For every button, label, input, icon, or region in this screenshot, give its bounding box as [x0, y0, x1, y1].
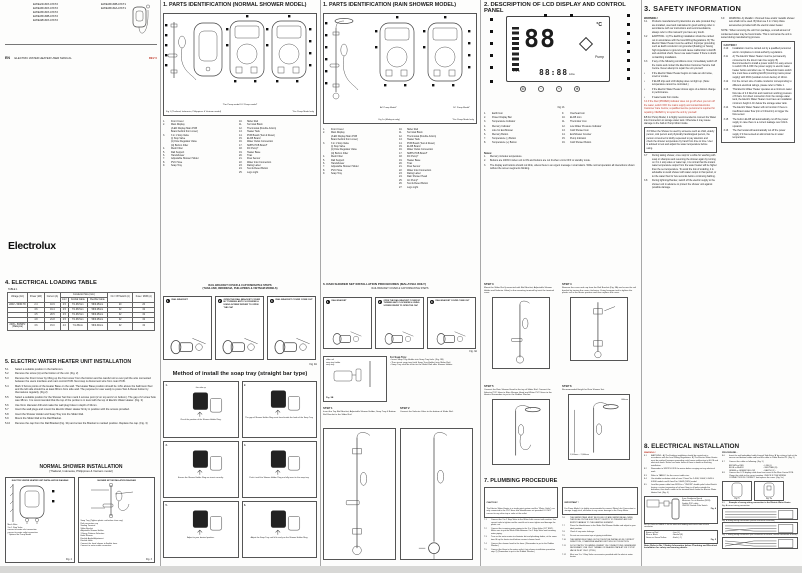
safety-item: 3.3If any of the following conditions oc… [644, 60, 717, 70]
procedure-item: 7.2Connect the incoming water piping to … [484, 528, 558, 536]
fig1a-drawing [324, 14, 474, 106]
manual-page: EWE241MX-DST2EWE361MX-DST2EWE451MX-DST2E… [0, 0, 802, 573]
manual-title: ELECTRIC WATER HEATER USER MANUAL [14, 56, 71, 60]
legend-entry: 8.Temperature (+) Button [484, 141, 558, 144]
part-entry: 9.Soap Tray [163, 164, 235, 167]
step5-text: Connect the Rain Shower Head to the top … [484, 389, 558, 397]
step3-figure [492, 297, 550, 369]
ac-pump-label: AC Pump Model* [380, 107, 397, 110]
heater-unit-icon [129, 4, 153, 42]
step4-label: STEP 4 [562, 282, 636, 286]
section8-title: 8. ELECTRICAL INSTALLATION [644, 443, 798, 450]
rail-step-panel: 3 RAIL BRACKET COVER COME OUT [427, 297, 476, 349]
safety-item: 3.7During taking shower, once stop for a… [644, 154, 717, 178]
procedure-item: 5.4Mark 3 Screw points of the Heater Bas… [5, 385, 157, 395]
part-entry: 27.Logo Light [399, 186, 436, 189]
dc-pump-label: DC Pump Model* [453, 107, 470, 110]
procedure-item: 7.5Connect the Hose to the water outlet.… [484, 549, 558, 554]
cold-shower-button[interactable]: ❄ [574, 86, 580, 92]
fig1a-frame: AC Pump Model* DC Pump Model* Fig 1a (Ma… [323, 13, 477, 124]
degc-label: °C [596, 22, 602, 28]
fig1-caption: Fig 1 (Thailand, Indonesia, Philippines … [166, 111, 221, 114]
caution-item: 3.11A) The Electric Water Heater must be… [724, 55, 793, 79]
step2-text: Connect the Selector Valve to the bottom… [400, 411, 473, 414]
pump-digit-box [579, 37, 593, 51]
normal-install-heading: NORMAL SHOWER INSTALLATION [Thailand, In… [5, 464, 157, 474]
plumbing-caution-box: CAUTION ! The Electric Water Heater is a… [484, 487, 558, 518]
procedure-item: 5.8Insert the Shower Holder and Soap Tra… [5, 413, 157, 416]
legend-entry: 4.Memory Indicator [484, 125, 558, 128]
fig3-labels: Soap Tray (Tighten plastic nut before cl… [81, 520, 153, 548]
page-edge [0, 566, 802, 573]
procedure-item: 7.1Connect the 3 in 1 Stop Valve to the … [484, 519, 558, 527]
fig1b-caption: Fig 1b [484, 106, 638, 109]
safety-item: 3.2EARTHING : A) The Earthing installati… [644, 35, 717, 59]
lcd-title: 2. DESCRIPTION OF LCD DISPLAY AND CONTRO… [484, 2, 638, 14]
fig5-figures: Fig. 5 Fig. 5a [722, 481, 798, 501]
step4-text: Remove the cover and cap from the Rail B… [562, 287, 636, 295]
steps-1-2-figures [323, 428, 477, 560]
temperature-digits: 88 [524, 19, 556, 59]
column-divider [641, 0, 642, 566]
legend-entry: 16.Cold Shower Button [562, 141, 601, 144]
part-entry: 25.Logo Light [239, 171, 276, 174]
section3-title: 3. SAFETY INFORMATION [644, 4, 798, 13]
procedure-item: 5.5Select a suitable position for the Sh… [5, 396, 157, 403]
figure-label: * Optional for Pump Model [8, 534, 73, 537]
plumbing-body: CAUTION ! The Electric Water Heater is a… [484, 487, 638, 560]
parts-normal-title: 1. PARTS IDENTIFICATION (NORMAL SHOWER M… [163, 2, 317, 8]
soap-tray-notes: For Soap Tray: • Insert Soap Tray Holder… [390, 356, 477, 402]
electrical-bold-note: Note: Refer to No. 3 Safety Information … [644, 545, 718, 550]
soap-step-panel: 4. Push it until the Shower Holder Ring … [242, 441, 318, 498]
step2-label: STEP 2 [400, 406, 473, 410]
legend-entry: 12.Low Water Pressure Indicator [562, 125, 601, 128]
panel-parts-normal: 1. PARTS IDENTIFICATION (NORMAL SHOWER M… [163, 0, 317, 566]
fig3-caption: Fig. 3 [146, 558, 152, 561]
procedure-item: 5.1Select a suitable position in the bat… [5, 368, 157, 371]
legend-entry: 6.Memory Button [484, 133, 558, 136]
column-divider [480, 0, 481, 566]
plumbing-important-box: IMPORTANT ! For Pump Model, it is highly… [562, 487, 638, 515]
fig3b-labels: slider railsoap tray holdersoap tray [326, 359, 340, 367]
legend-entry: 9.Overheat Icon [562, 112, 601, 115]
step2-figure [400, 428, 473, 560]
note-entry: 1.Memory includes temperature. [484, 155, 638, 158]
legend-entry: 10.ELCB Icon [562, 116, 601, 119]
procedure-item: 5.6Use 6mm diameter drill and make the w… [5, 404, 157, 407]
procedure-item: 5.7Insert the wall plugs and mount the E… [5, 408, 157, 411]
soap-step-panel: 6. Adjust the Soap Tray until it fit nic… [242, 501, 318, 558]
fig4-box: Fuse Distributor BoardMiniature Circuit … [644, 496, 718, 524]
figB-drawing [722, 522, 798, 534]
safety-item-3-9: 3.9WARNING: A) Metallic / chromed hose a… [721, 17, 795, 27]
pump-note: *For Pump model DC Pump model* [164, 104, 316, 107]
panel-safety-electrical: 3. SAFETY INFORMATION WARNING ! 3.1Produ… [644, 0, 798, 566]
procedure-item: 7.4Connect the shower head to the hose. … [484, 543, 558, 548]
fig3b-box: slider railsoap tray holdersoap tray Fig… [323, 356, 387, 402]
safety-item: •If ELCB trips and LCD display does not … [644, 80, 717, 87]
legend-entry: 7.Temperature (-) Button [484, 137, 558, 140]
fig2-unit-install-diagram: ELECTRIC WATER HEATER UNIT INSTALLATION … [5, 477, 75, 563]
fig4-note: NOTE: Refer to TABLE 1 for the electrica… [644, 524, 718, 529]
fig1a-note: *For Pump Model only [452, 119, 474, 122]
electrical-item: 8.5Lead the power cable from MCB to a "O… [644, 484, 718, 494]
normal-install-figures: ELECTRIC WATER HEATER UNIT INSTALLATION … [5, 477, 157, 563]
power-display-bar [512, 27, 519, 71]
legend-entry: 15.Pump Indicator [562, 137, 601, 140]
note-entry: 3.The display and buttons should not bli… [484, 164, 638, 170]
soap-step-panel: 3. Ensure the Shower Holder Ring are ins… [163, 441, 239, 498]
section7-title: 7. PLUMBING PROCEDURE [484, 478, 638, 484]
dim-2000mm: 1,900mm ~ 2,000mm [570, 454, 589, 457]
procedure-item: 7.3Turn on the water mains to eliminate … [484, 536, 558, 541]
electrical-item: 8.4Use double insulation cable of over 2… [644, 478, 718, 483]
fig2-caption: Fig. 2 [66, 558, 72, 561]
fig1-drawing [164, 14, 314, 98]
procedure-item: 5.3Remove the Front Cover by lifting up … [5, 377, 157, 384]
parts-rain-list: 1.Front Cover2.Main Display(/LED Display… [323, 128, 477, 189]
ecoshower-counter: 88:88 [539, 68, 568, 77]
step6-figure: 600mm 1,900mm ~ 2,000mm [568, 394, 630, 460]
safety-item: •If the Electric Water Heater begins to … [644, 72, 717, 79]
safety-item: 3.8During lightning/thunder, switch off … [644, 179, 717, 189]
legend-entry: 13.Cold Shower Icon [562, 129, 601, 132]
fig3-drawing [81, 482, 151, 520]
loading-table-wrap: Voltage (AC) Power (kW) Current (A) Cond… [7, 292, 155, 331]
soap-step-panel: 5. Adjust to your desired position. [163, 501, 239, 558]
legend-entry: 3.Temperature Indicator [484, 120, 558, 123]
procedure-item: 7.7Press the Handshower to the Slider Ra… [562, 525, 638, 530]
caution-item: 3.12For the correct size of cable conduc… [724, 80, 793, 87]
fig4-labels: Fuse Distributor BoardMiniature Circuit … [682, 498, 716, 508]
fig3b-caption: Fig. 3B [326, 397, 333, 400]
wire-color-box: Brown or Red: Live (L)Blue or Black: Neu… [644, 530, 718, 544]
procedure-item: 7.10THE WATER INLET AND OUTLET MUST BE I… [562, 539, 638, 544]
brand-logo: Electrolux [8, 240, 157, 252]
lcd-figure: 88 °C Pump 1 2 3 88:88 Litre M − + ❄ [484, 14, 638, 106]
section5-items: 5.1Select a suitable position in the bat… [5, 368, 157, 426]
parts-rain-title: 1. PARTS IDENTIFICATION (RAIN SHOWER MOD… [323, 2, 477, 8]
temp-minus-button[interactable]: − [538, 86, 544, 92]
electrical-item: 8.6Insert the wall embedded cable throug… [722, 455, 798, 460]
dim-600mm: 600mm [621, 399, 628, 402]
electrical-item: 8.2Remember to SWITCH OFF the mains befo… [644, 468, 718, 473]
fig1-frame: *For Pump model DC Pump model* Fig 1 (Th… [163, 13, 317, 116]
procedure-item: 7.6THE WATER TANK MUST BE FILLED UP AND … [562, 517, 638, 525]
figC-drawing [722, 537, 798, 549]
step1-figure [323, 428, 396, 560]
fig5-box: Fig. 5 [722, 481, 752, 501]
soap-step-panel: 1. this side up Check the position of th… [163, 381, 239, 438]
caution-item: 3.15The built-in ELCB will automatically… [724, 118, 793, 128]
fig3-shower-set-diagram: SHOWER SET INSTALLATION DIAGRAM Soap Tra… [78, 477, 155, 563]
step6-text: Recommended Height for Rain Shower Set. [562, 389, 636, 392]
fig2-header: ELECTRIC WATER HEATER UNIT INSTALLATION … [8, 480, 73, 483]
column-divider [320, 0, 321, 566]
caution-item: 3.14The Electric Water Heater will not f… [724, 106, 793, 116]
model-number: EWE481MX-DST2 [33, 19, 97, 23]
electrical-item: 8.7Connect the cable as following: (Fig.… [722, 461, 798, 464]
electrical-body: WARNING ! 8.1EARTHING : A) The Earthing … [644, 452, 798, 550]
fig4-drawing [646, 498, 680, 522]
loading-table: Voltage (AC) Power (kW) Current (A) Cond… [7, 292, 155, 331]
electrical-item-8-9: 8.9Example of wrong wiring connection to… [722, 502, 798, 505]
safety-box-3-6: 3.6 When the Shower is used by someone s… [644, 127, 717, 152]
procedure-item: 7.11DO NOT APPLY PLUMBING CEMENT ON CONN… [562, 545, 638, 553]
step3-text: Mount the Slider Rail (connected with Ra… [484, 287, 558, 295]
safety-item-3-5: 3.5 For Pump Model, it is highly recomme… [644, 116, 717, 126]
fig5a-box: Fig. 5a [754, 481, 784, 501]
table-label: TABLE 1 [8, 288, 157, 291]
model-number: EWE361MA-DST1 [101, 7, 126, 11]
legend-entry: 1.Earth Icon [484, 112, 558, 115]
electrical-item: 8.1EARTHING : A) The Earthing installati… [644, 455, 718, 468]
figure-label: soap tray [326, 364, 340, 367]
language-tag: EN [5, 56, 10, 60]
figA-drawing [722, 508, 798, 520]
steps-1-2: STEP 1 Insert the Top Rail Bracket, Adju… [323, 406, 477, 416]
steps-5-6: STEP 5 Connect the Rain Shower Head to t… [484, 384, 638, 465]
fig4-caption: Fig. 4 [682, 508, 716, 511]
rail-step-panel: 3 RAIL BRACKET COVER COME OUT [267, 296, 316, 360]
legend-entry: 14.EcoShower Counter [562, 133, 601, 136]
legend-entry: 11.Thermistor Icon [562, 120, 601, 123]
temp-plus-button[interactable]: + [556, 86, 562, 92]
fig2-labels: Mesh Filter3 in 1 Stop Valveconnect to w… [8, 524, 73, 537]
caution-box: CAUTION ! 3.10Installation must be carri… [721, 41, 795, 143]
fig3a-caption: Fig 3A [163, 363, 317, 366]
safety-item-3-4: 3.4 If the Red (POWER) indicator does no… [644, 100, 717, 114]
soap-method-title: Method of install the soap tray (straigh… [163, 371, 317, 377]
steps-3-4: STEP 3 Mount the Slider Rail (connected … [484, 282, 638, 369]
step1-label: STEP 1 [323, 406, 396, 410]
safety-item: •If water leaks from inside. [644, 96, 717, 99]
fig3a-caption-rain: Fig. 3A [323, 350, 477, 353]
procedure-item: 5.10Remove the cap from the Rail Bracket… [5, 422, 157, 425]
safety-item: 3.1Products manufactured by Electrolux a… [644, 20, 717, 34]
fig1a-caption: Fig 1a (Malaysia only) [326, 119, 452, 122]
section5-title: 5. ELECTRIC WATER HEATER UNIT INSTALLATI… [5, 359, 157, 365]
step5-figure [492, 399, 550, 465]
caution-item: 3.10Installation must be carried out by … [724, 47, 793, 54]
fig1-note: *For Pump Model only [292, 111, 314, 114]
legend-entry: 5.Litre for EcoShower [484, 129, 558, 132]
fig2-drawing [8, 482, 72, 524]
table-row: 240V~ 50/60Hz (Malaysia)3.615.0 4.07/1.3… [8, 322, 155, 330]
panel-parts-rain: 1. PARTS IDENTIFICATION (RAIN SHOWER MOD… [323, 0, 477, 566]
section6-heading: 6. RAIN SHOWER SET INSTALLATION PROCEDUR… [323, 283, 477, 290]
figure-label: Connect to water outlet connection [81, 545, 153, 548]
safety-note: NOTE : When removing the unit from packa… [721, 29, 795, 39]
procedure-item: 7.8Check if any water leakage. [562, 531, 638, 534]
note-line: • Soap Tray shall be insert to the Slide… [390, 364, 477, 367]
rail-step-panel: 2 OPEN THE RAIL BRACKET COVER BY TURNING… [375, 297, 424, 349]
fig3b-row: slider railsoap tray holdersoap tray Fig… [323, 356, 477, 402]
electrical-item-8-8: 8.8Connect the LCD display cable from fr… [722, 472, 798, 480]
caution-item: 3.13This Electric Water Heater operates … [724, 88, 793, 105]
revision-label: REV 0 [149, 57, 157, 61]
column-divider [160, 0, 161, 566]
procedure-item: 7.9Do not use excessive tape at piping i… [562, 535, 638, 538]
loading-table-header: Voltage (AC) Power (kW) Current (A) Cond… [8, 293, 155, 303]
rain-rail-panels: 1 RAIL BRACKET 2 OPEN THE RAIL BRACKET C… [323, 297, 477, 349]
rail-step-panel: 2 OPEN THE RAIL BRACKET COVER BY TURNING… [215, 296, 264, 360]
step3-label: STEP 3 [484, 282, 558, 286]
procedure-item: 5.9Mount the Slider Rail to the Rail Bra… [5, 417, 157, 420]
rail-step-panel: 1 RAIL BRACKET [323, 297, 372, 349]
note-entry: 2.Buttons are 100% lit when unit is ON a… [484, 159, 638, 162]
caution-item: 3.16The thermostat will automatically cu… [724, 129, 793, 139]
lcd-notes: Notes: 1.Memory includes temperature.2.B… [484, 152, 638, 171]
step4-figure [570, 297, 628, 361]
rail-steps-panels: 1 RAIL BRACKET 2 OPEN THE RAIL BRACKET C… [163, 296, 317, 360]
safety-body: WARNING ! 3.1Products manufactured by El… [644, 17, 798, 191]
panel-cover: EWE241MX-DST2EWE361MX-DST2EWE451MX-DST2E… [5, 0, 157, 566]
lcd-screen: 88 °C Pump 1 2 3 88:88 Litre [506, 16, 610, 82]
rail-steps-heading: RAIL BRACKET COVER & CAP DISMANTLE STEPS… [163, 284, 317, 291]
soap-method-panels: 1. this side up Check the position of th… [163, 381, 317, 558]
manual-title-row: EN ELECTRIC WATER HEATER USER MANUAL REV… [5, 46, 157, 64]
fig5-caption-left: Fig. 5 [646, 539, 716, 542]
memory-indicator: 1 2 3 [513, 69, 520, 73]
litre-label: Litre [569, 72, 575, 76]
control-buttons: M − + ❄ [520, 86, 580, 92]
lcd-legend: 1.Earth Icon2.Power Display Bar3.Tempera… [484, 112, 638, 146]
safety-item: •If the Electric Water Heater shows sign… [644, 88, 717, 95]
procedure-item: 7.12Must use 3 in 1 Stop Valve accessori… [562, 554, 638, 559]
model-list: EWE241MX-DST2EWE361MX-DST2EWE451MX-DST2E… [33, 3, 127, 23]
section4-title: 4. ELECTRICAL LOADING TABLE [5, 280, 157, 286]
parts-normal-list: 1.Front Cover2.Main Display(/LED Display… [163, 120, 317, 174]
rail-step-panel: 1 RAIL BRACKET [163, 296, 212, 360]
electrical-item: 8.3Refer to TABLE 1 for the correct cabl… [644, 475, 718, 478]
procedure-item: 5.2Remove the screw (A) at the bottom of… [5, 372, 157, 375]
panel-lcd-and-procedures: 2. DESCRIPTION OF LCD DISPLAY AND CONTRO… [484, 0, 638, 566]
soap-step-panel: 2. The gap of Shower Holder Ring must fa… [242, 381, 318, 438]
step1-text: Insert the Top Rail Bracket, Adjustable … [323, 411, 396, 416]
memory-button[interactable]: M [520, 86, 526, 92]
step6-label: STEP 6 [562, 384, 636, 388]
step5-label: STEP 5 [484, 384, 558, 388]
pump-indicator: Pump [595, 55, 604, 59]
legend-entry: 2.Power Display Bar [484, 116, 558, 119]
part-entry: 9.Soap Tray [323, 172, 395, 175]
